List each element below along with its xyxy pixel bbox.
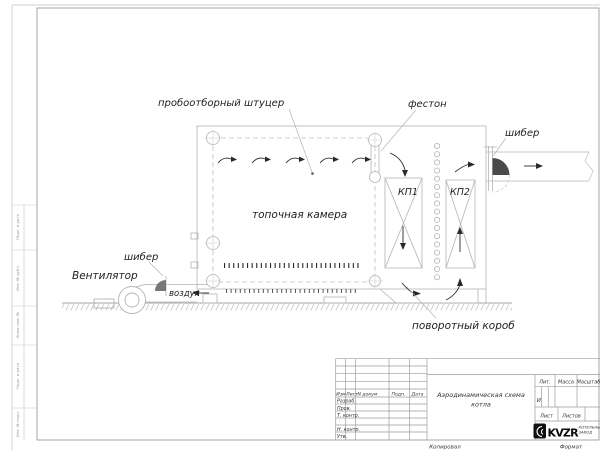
sampling-point-dot <box>311 172 314 175</box>
tb-listov-label: Листов <box>561 414 581 420</box>
tube-bank <box>434 143 439 279</box>
furnace-flow-arrows <box>218 157 371 164</box>
tb-lit-value: И <box>537 398 541 404</box>
doc-title-line1: Аэродинамическая схема <box>436 391 525 399</box>
margin-stamp-d: Подп. и дата <box>15 362 20 389</box>
margin-stamp-e: Инв. № подл. <box>15 411 20 437</box>
tb-row-t-kontr: Т. контр. <box>337 413 359 419</box>
label-furnace-chamber: топочная камера <box>252 209 347 221</box>
label-air: воздух <box>169 289 201 299</box>
company-logo: KVZR КОТЕЛЬНЫЙ ЗАВОД <box>534 424 600 440</box>
label-fan: Вентилятор <box>72 270 138 282</box>
tb-masshtab-label: Масштаб <box>577 380 600 386</box>
tb-row-n-kontr: Н. контр. <box>337 427 360 433</box>
label-damper-outlet: шибер <box>505 127 539 139</box>
margin-stamp-b: Инв. № дубл. <box>15 265 20 291</box>
tb-row-utv: Утв. <box>337 434 347 440</box>
tb-col-podp: Подп. <box>392 391 406 397</box>
tb-col-data: Дата <box>411 391 424 397</box>
label-sampling-fitting: пробоотборный штуцер <box>158 97 284 109</box>
logo-sub2: ЗАВОД <box>579 430 593 435</box>
drawing-sheet: Подп. и дата Инв. № дубл. Взам. инв. № П… <box>0 0 600 450</box>
logo-text: KVZR <box>548 427 580 440</box>
footer-format: Формат <box>560 445 583 450</box>
label-kp1: КП1 <box>398 187 418 198</box>
left-margin-table: Подп. и дата Инв. № дубл. Взам. инв. № П… <box>12 205 37 440</box>
outlet-damper <box>484 146 510 192</box>
label-festoon: фестон <box>408 99 447 110</box>
tb-col-n-dokum: N докум <box>358 391 378 397</box>
drawing-canvas: Подп. и дата Инв. № дубл. Взам. инв. № П… <box>0 0 600 450</box>
air-damper <box>155 276 166 296</box>
tb-row-razrab: Разраб. <box>337 399 356 405</box>
tb-list-label: Лист <box>539 414 554 420</box>
label-turning-duct: поворотный короб <box>412 320 515 332</box>
label-kp2: КП2 <box>450 187 470 198</box>
tb-massa-label: Масса <box>558 380 574 386</box>
convection-section <box>385 143 475 279</box>
doc-title-line2: котла <box>471 401 491 409</box>
margin-stamp-c: Взам. инв. № <box>15 312 20 338</box>
sheet-frame <box>12 5 600 450</box>
tb-lit-label: Лит. <box>538 380 551 386</box>
margin-stamp-a: Подп. и дата <box>15 213 20 240</box>
footer-kopiroval: Копировал <box>429 445 461 450</box>
tb-row-prov: Пров. <box>337 406 351 412</box>
label-damper-air: шибер <box>124 251 158 263</box>
flow-arrows <box>192 153 543 300</box>
sheet-footer: Копировал Формат <box>429 445 583 450</box>
outlet-duct <box>484 146 593 192</box>
tb-col-izm: Изм <box>336 391 346 397</box>
title-block: Изм Лист N докум Подп. Дата Разраб. Пров… <box>336 359 600 440</box>
tb-col-list: Лист <box>345 391 358 397</box>
